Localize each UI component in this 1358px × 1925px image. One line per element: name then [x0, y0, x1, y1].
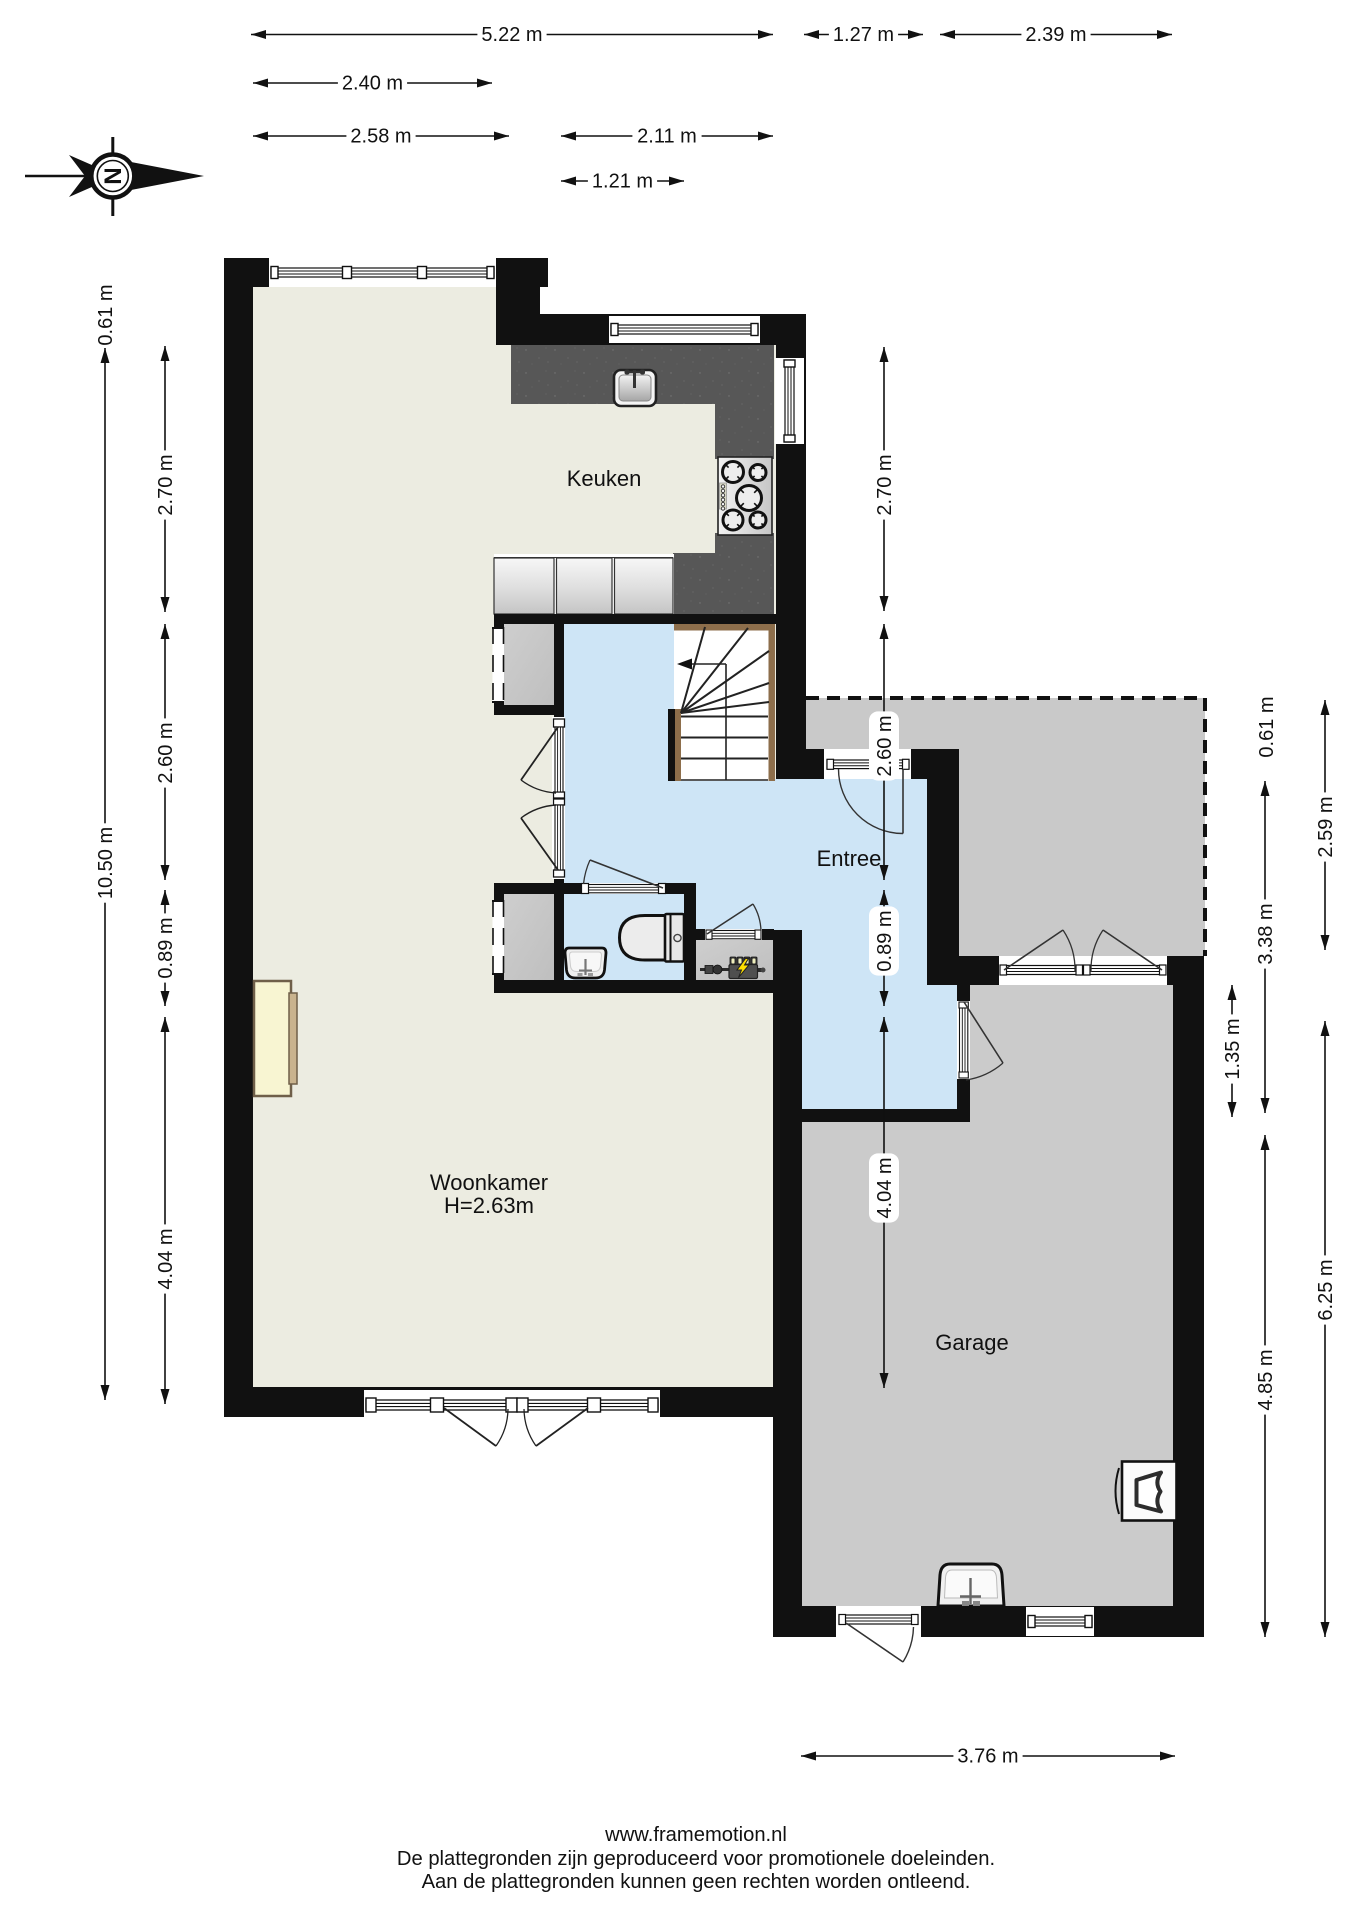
svg-text:2.70 m: 2.70 m	[874, 454, 896, 515]
svg-text:5.22 m: 5.22 m	[481, 24, 542, 46]
svg-text:4.04 m: 4.04 m	[874, 1157, 896, 1218]
svg-text:H=2.63m: H=2.63m	[444, 1193, 534, 1218]
svg-text:1.21 m: 1.21 m	[592, 171, 653, 193]
svg-text:1.35 m: 1.35 m	[1222, 1018, 1244, 1079]
svg-text:0.89 m: 0.89 m	[155, 917, 177, 978]
svg-text:2.60 m: 2.60 m	[874, 715, 896, 776]
svg-text:0.89 m: 0.89 m	[874, 910, 896, 971]
svg-text:www.framemotion.nl: www.framemotion.nl	[604, 1824, 787, 1846]
svg-text:2.60 m: 2.60 m	[155, 722, 177, 783]
svg-text:Woonkamer: Woonkamer	[430, 1170, 548, 1195]
svg-text:2.70 m: 2.70 m	[155, 454, 177, 515]
svg-text:Keuken: Keuken	[567, 466, 642, 491]
svg-text:2.11 m: 2.11 m	[637, 126, 697, 148]
svg-text:N: N	[98, 167, 125, 184]
svg-text:0.61 m: 0.61 m	[1256, 696, 1278, 757]
svg-text:4.04 m: 4.04 m	[155, 1228, 177, 1289]
svg-text:2.58 m: 2.58 m	[350, 126, 411, 148]
svg-text:Garage: Garage	[935, 1330, 1008, 1355]
svg-text:1.27 m: 1.27 m	[833, 24, 894, 46]
svg-text:4.85 m: 4.85 m	[1255, 1349, 1277, 1410]
svg-text:3.38 m: 3.38 m	[1255, 903, 1277, 964]
svg-text:0.61 m: 0.61 m	[95, 284, 117, 345]
svg-text:2.39 m: 2.39 m	[1025, 24, 1086, 46]
svg-text:6.25 m: 6.25 m	[1315, 1259, 1337, 1320]
svg-text:10.50 m: 10.50 m	[95, 827, 117, 899]
svg-text:3.76 m: 3.76 m	[957, 1746, 1018, 1768]
svg-text:De plattegronden zijn geproduc: De plattegronden zijn geproduceerd voor …	[397, 1848, 995, 1870]
svg-text:Entree: Entree	[817, 846, 882, 871]
svg-text:Aan de plattegronden kunnen ge: Aan de plattegronden kunnen geen rechten…	[422, 1871, 971, 1893]
svg-text:2.40 m: 2.40 m	[342, 73, 403, 95]
svg-text:2.59 m: 2.59 m	[1315, 796, 1337, 857]
